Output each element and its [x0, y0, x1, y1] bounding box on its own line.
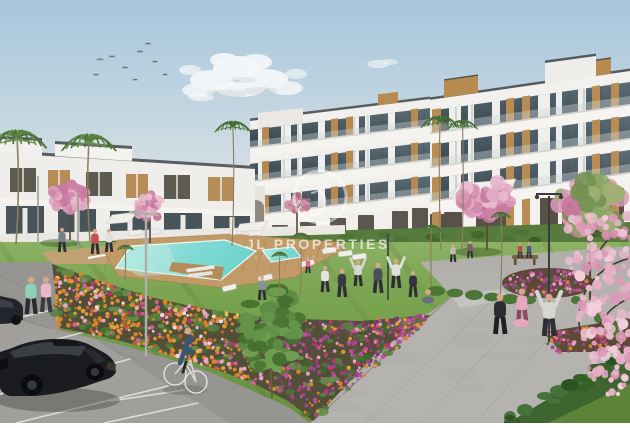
- svg-text:REAL ESTATE: REAL ESTATE: [247, 255, 320, 261]
- svg-text:JL PROPERTIES: JL PROPERTIES: [246, 236, 390, 252]
